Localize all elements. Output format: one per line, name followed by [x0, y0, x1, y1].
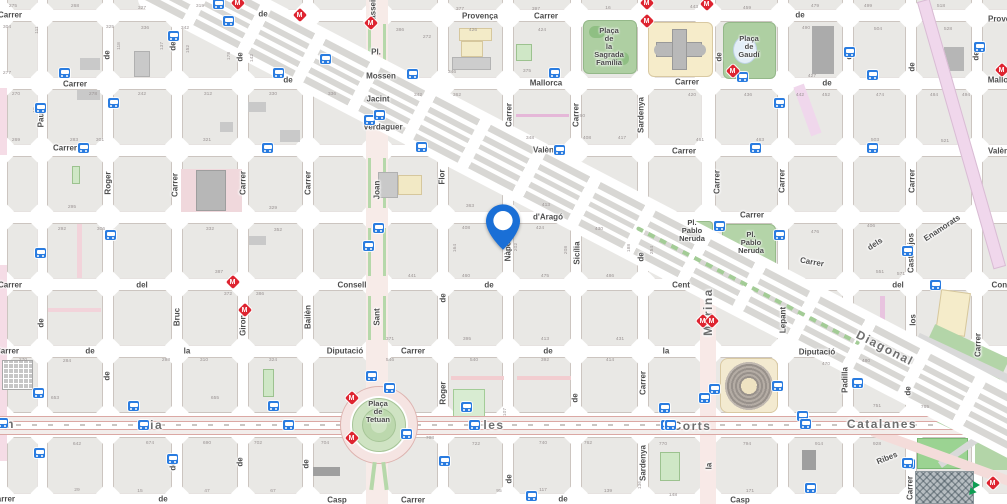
- house-number: 352: [274, 228, 282, 233]
- house-number: 424: [538, 28, 546, 33]
- city-block: [385, 223, 438, 279]
- city-block: [313, 290, 369, 346]
- house-number: 164: [453, 244, 458, 252]
- city-block: [47, 357, 104, 414]
- house-number: 490: [802, 26, 810, 31]
- city-block: [182, 89, 238, 145]
- city-block: [513, 0, 571, 10]
- bus-stop-icon[interactable]: [709, 384, 720, 394]
- house-number: 15: [137, 489, 142, 494]
- building: [248, 102, 266, 112]
- map-pin-icon[interactable]: [486, 204, 520, 255]
- house-number: 306: [97, 227, 105, 232]
- city-block: [313, 0, 369, 10]
- bus-stop-icon[interactable]: [469, 420, 480, 430]
- house-number: 332: [206, 227, 214, 232]
- city-block: [248, 290, 303, 346]
- house-number: 430: [595, 227, 603, 232]
- building-yellow: [398, 175, 422, 195]
- house-number: 452: [822, 93, 830, 98]
- bus-stop-icon[interactable]: [461, 402, 472, 412]
- city-block: [182, 357, 238, 414]
- bus-stop-icon[interactable]: [665, 420, 676, 430]
- street-label: de: [543, 347, 552, 356]
- bus-stop-icon[interactable]: [167, 454, 178, 464]
- house-number: 486: [606, 274, 614, 279]
- house-number: 413: [541, 337, 549, 342]
- street-label: Carrer: [572, 103, 581, 127]
- bus-stop-icon[interactable]: [373, 223, 384, 233]
- house-number: 928: [873, 442, 881, 447]
- city-block: [385, 0, 438, 10]
- bus-stop-icon[interactable]: [800, 419, 811, 429]
- house-number: 722: [472, 442, 480, 447]
- bus-stop-icon[interactable]: [0, 418, 8, 428]
- street-label: Roger: [104, 171, 113, 194]
- street-label: de: [258, 10, 267, 19]
- passage: [48, 308, 101, 312]
- house-number: 762: [584, 441, 592, 446]
- street-label: de: [236, 457, 245, 466]
- place-label: PlaçadeTetuan: [366, 400, 390, 424]
- street-label: Mallorca: [530, 79, 562, 88]
- street-label: Carrer: [534, 12, 558, 21]
- street-label: de: [37, 318, 46, 327]
- street-label: de: [715, 52, 724, 61]
- house-number: 503: [871, 138, 879, 143]
- house-number: 740: [539, 441, 547, 446]
- house-number: 327: [138, 6, 146, 11]
- building: [196, 170, 226, 211]
- bus-stop-icon[interactable]: [35, 103, 46, 113]
- street-label: Carrer: [639, 371, 648, 395]
- city-block: [513, 223, 571, 279]
- house-number: 371: [386, 337, 394, 342]
- house-number: 413: [542, 203, 550, 208]
- bus-stop-icon[interactable]: [867, 70, 878, 80]
- bus-stop-icon[interactable]: [401, 429, 412, 439]
- street-label: de: [637, 252, 646, 261]
- street-label: de: [85, 347, 94, 356]
- house-number: 765: [921, 405, 929, 410]
- building: [802, 450, 816, 470]
- house-number: 521: [941, 139, 949, 144]
- house-number: 137: [160, 42, 165, 50]
- house-number: 474: [876, 93, 884, 98]
- city-block: [788, 156, 843, 212]
- house-number: 310: [200, 358, 208, 363]
- street-label: de: [505, 474, 514, 483]
- street-label: Corts: [673, 419, 712, 433]
- house-number: 704: [321, 441, 329, 446]
- street-label: Cent: [672, 281, 690, 290]
- street-label: los: [909, 314, 918, 326]
- street-label: Flor: [438, 169, 447, 184]
- street-label: Casp: [327, 496, 347, 504]
- street-label: Diputació: [799, 348, 835, 357]
- house-number: 270: [19, 358, 27, 363]
- house-number: 342: [414, 93, 422, 98]
- bus-stop-icon[interactable]: [59, 68, 70, 78]
- house-number: 426: [469, 28, 477, 33]
- house-number: 372: [224, 292, 232, 297]
- house-number: 406: [867, 224, 875, 229]
- street-label: de: [236, 52, 245, 61]
- house-number: 324: [269, 358, 277, 363]
- bus-stop-icon[interactable]: [35, 248, 46, 258]
- bus-stop-icon[interactable]: [867, 143, 878, 153]
- place-label: PlaçadeGaudí: [738, 35, 759, 59]
- house-number: 136: [638, 481, 643, 489]
- house-number: 29: [74, 488, 79, 493]
- bus-stop-icon[interactable]: [659, 403, 670, 413]
- house-number: 269: [12, 138, 20, 143]
- house-number: 95: [496, 489, 501, 494]
- house-number: 417: [618, 136, 626, 141]
- house-number: 392: [541, 358, 549, 363]
- house-number: 441: [408, 274, 416, 279]
- house-number: 117: [539, 488, 547, 493]
- street-label: Marina: [701, 288, 715, 336]
- street-label: Diputació: [327, 347, 363, 356]
- house-number: 16: [605, 6, 610, 11]
- house-number: 443: [690, 5, 698, 10]
- house-number: 408: [462, 226, 470, 231]
- place-label: Pl.PabloNeruda: [738, 231, 764, 255]
- bus-stop-icon[interactable]: [439, 456, 450, 466]
- city-block: [581, 357, 638, 414]
- house-number: 188: [627, 244, 632, 252]
- street-label: de: [972, 51, 981, 60]
- house-number: 321: [203, 138, 211, 143]
- bus-stop-icon[interactable]: [128, 401, 139, 411]
- house-number: 204: [756, 386, 761, 394]
- bus-stop-icon[interactable]: [737, 72, 748, 82]
- bus-stop-icon[interactable]: [374, 110, 385, 120]
- median-green: [368, 228, 371, 276]
- house-number: 111: [35, 26, 40, 33]
- sagrada-familia-building: [694, 44, 706, 56]
- house-number: 751: [873, 404, 881, 409]
- house-number: 325: [106, 25, 114, 30]
- house-number: 690: [203, 441, 211, 446]
- house-number: 546: [386, 358, 394, 363]
- city-block: [982, 89, 1007, 145]
- city-block: [7, 156, 38, 212]
- street-label: Mossen: [366, 72, 396, 81]
- street-label: Carrer: [401, 496, 425, 504]
- street-label: de: [283, 76, 292, 85]
- street-label: Sant: [373, 308, 382, 325]
- house-number: 342: [181, 26, 189, 31]
- house-number: 362: [453, 93, 461, 98]
- bus-stop-icon[interactable]: [273, 68, 284, 78]
- bus-stop-icon[interactable]: [34, 448, 45, 458]
- bus-stop-icon[interactable]: [844, 47, 855, 57]
- bus-stop-icon[interactable]: [366, 371, 377, 381]
- sagrada-familia-building: [654, 44, 666, 56]
- street-label: Provença: [462, 12, 498, 21]
- bus-stop-icon[interactable]: [363, 241, 374, 251]
- city-block: [182, 290, 238, 346]
- street-label: Carrer: [304, 171, 313, 195]
- house-number: 272: [423, 35, 431, 40]
- street-label: la: [184, 347, 191, 356]
- house-number: 479: [811, 4, 819, 9]
- street-label: Pl.: [371, 48, 381, 57]
- house-number: 653: [51, 396, 59, 401]
- bus-stop-icon[interactable]: [407, 69, 418, 79]
- street-label: Consell: [992, 281, 1007, 290]
- city-block: [7, 21, 38, 78]
- street-label: de: [158, 495, 167, 504]
- passage: [77, 224, 82, 278]
- street-label: Jacint: [366, 95, 389, 104]
- median-green: [368, 296, 371, 340]
- street-label: de: [103, 50, 112, 59]
- house-number: 540: [470, 358, 478, 363]
- bus-stop-icon[interactable]: [805, 483, 816, 493]
- bus-stop-icon[interactable]: [268, 401, 279, 411]
- bus-stop-icon[interactable]: [223, 16, 234, 26]
- house-number: 499: [864, 4, 872, 9]
- street-label: Carrer: [0, 281, 22, 290]
- bus-stop-icon[interactable]: [554, 145, 565, 155]
- bus-stop-icon[interactable]: [33, 388, 44, 398]
- house-number: 674: [146, 441, 154, 446]
- house-number: 254: [650, 246, 655, 254]
- bus-stop-icon[interactable]: [974, 42, 985, 52]
- bus-stop-icon[interactable]: [549, 68, 560, 78]
- street-label: Carrer: [672, 147, 696, 156]
- bus-stop-icon[interactable]: [902, 458, 913, 468]
- map-canvas[interactable]: CarrerdeProvençaCarrerdeProvençaCarrerde…: [0, 0, 1007, 504]
- house-number: 414: [606, 358, 614, 363]
- city-block: [7, 223, 38, 279]
- street-label: Joan: [373, 181, 382, 200]
- city-block: [581, 290, 638, 346]
- street-pink-edge: [0, 88, 7, 155]
- street-label: Sardenya: [639, 445, 648, 481]
- bus-stop-icon[interactable]: [168, 31, 179, 41]
- street-label: de: [571, 393, 580, 402]
- house-number: 770: [659, 442, 667, 447]
- els-encants-building: [915, 471, 974, 504]
- city-block: [113, 156, 172, 212]
- street-label: Carrer: [0, 495, 15, 504]
- house-number: 348: [526, 136, 534, 141]
- city-block: [113, 223, 172, 279]
- house-number: 329: [269, 206, 277, 211]
- house-number: 702: [254, 441, 262, 446]
- house-number: 386: [396, 28, 404, 33]
- house-number: 708: [426, 436, 434, 441]
- bus-stop-icon[interactable]: [852, 378, 863, 388]
- bus-stop-icon[interactable]: [714, 221, 725, 231]
- city-block: [113, 290, 172, 346]
- street-label: de: [439, 293, 448, 302]
- house-number: 420: [688, 93, 696, 98]
- sagrada-familia-building: [672, 29, 687, 70]
- house-number: 298: [162, 358, 170, 363]
- house-number: 463: [756, 138, 764, 143]
- bus-stop-icon[interactable]: [774, 230, 785, 240]
- passage: [516, 114, 569, 117]
- city-block: [513, 357, 571, 414]
- bus-stop-icon[interactable]: [213, 0, 224, 9]
- city-block: [982, 0, 1007, 10]
- bus-stop-icon[interactable]: [699, 393, 710, 403]
- house-number: 476: [811, 230, 819, 235]
- city-block: [853, 0, 906, 10]
- city-block: [7, 290, 38, 346]
- building: [220, 122, 233, 132]
- house-number: 283: [70, 138, 78, 143]
- city-block: [853, 156, 906, 212]
- street-label: Bruc: [173, 308, 182, 326]
- building-green: [263, 369, 274, 397]
- street-label: Carrer: [974, 333, 983, 357]
- city-block: [448, 290, 503, 346]
- street-label: Carrer: [740, 211, 764, 220]
- house-number: 346: [448, 70, 456, 75]
- street-label: Lepant: [779, 307, 788, 333]
- house-number: 319: [196, 4, 204, 9]
- house-number: 387: [215, 270, 223, 275]
- building: [249, 236, 266, 245]
- house-number: 275: [9, 4, 17, 9]
- house-number: 424: [536, 226, 544, 231]
- house-number: 336: [141, 26, 149, 31]
- street-label: Carrer: [53, 144, 77, 153]
- street-label: Carrer: [0, 347, 19, 356]
- place-label: PlaçadelaSagradaFamília: [594, 27, 624, 67]
- house-number: 571: [897, 272, 905, 277]
- street-label: del: [136, 281, 148, 290]
- median-green: [368, 158, 371, 208]
- street-label: de: [558, 495, 567, 504]
- bus-stop-icon[interactable]: [320, 54, 331, 64]
- city-block: [648, 290, 702, 346]
- street-label: de: [484, 281, 493, 290]
- house-number: 518: [937, 4, 945, 9]
- street-label: Casp: [730, 496, 750, 504]
- house-number: 436: [744, 93, 752, 98]
- street-label: Carrer: [713, 170, 722, 194]
- building-green: [72, 166, 80, 184]
- bus-stop-icon[interactable]: [416, 142, 427, 152]
- building: [2, 360, 33, 390]
- city-block: [182, 437, 238, 494]
- house-number: 470: [822, 362, 830, 367]
- bus-stop-icon[interactable]: [138, 420, 149, 430]
- city-block: [248, 437, 303, 494]
- bus-stop-icon[interactable]: [750, 143, 761, 153]
- house-number: 460: [462, 274, 470, 279]
- city-block: [7, 437, 38, 494]
- building-green: [660, 452, 680, 481]
- city-block: [581, 437, 638, 494]
- house-number: 270: [12, 92, 20, 97]
- house-number: 746: [743, 405, 751, 410]
- pin-glyph: [486, 204, 520, 250]
- house-number: 427: [808, 74, 816, 79]
- street-label: Carrer: [0, 11, 22, 20]
- building: [280, 130, 300, 142]
- house-number: 277: [3, 71, 11, 76]
- bus-stop-icon[interactable]: [774, 98, 785, 108]
- street-label: d'Aragó: [533, 213, 563, 222]
- metro-icon[interactable]: M: [700, 0, 714, 11]
- metro-icon[interactable]: M: [640, 0, 654, 10]
- street-label: Mallorca: [988, 76, 1007, 85]
- house-number: 442: [796, 93, 804, 98]
- recycling-icon[interactable]: [967, 479, 981, 493]
- house-number: 67: [270, 489, 275, 494]
- city-block: [248, 156, 303, 212]
- house-number: 386: [256, 292, 264, 297]
- house-number: 278: [89, 92, 97, 97]
- bus-stop-icon[interactable]: [384, 383, 395, 393]
- house-number: 304: [3, 25, 11, 30]
- street-label: la: [705, 463, 714, 470]
- street-label: Carrer: [63, 80, 87, 89]
- house-number: 655: [211, 396, 219, 401]
- house-number: 459: [743, 6, 751, 11]
- house-number: 794: [743, 442, 751, 447]
- house-number: 242: [138, 92, 146, 97]
- street-label: Carrer: [906, 476, 915, 500]
- median-green: [383, 296, 386, 340]
- bus-stop-icon[interactable]: [78, 143, 89, 153]
- building: [80, 58, 100, 70]
- street-label: Carrer: [778, 169, 787, 193]
- bus-stop-icon[interactable]: [283, 420, 294, 430]
- city-block: [47, 290, 104, 346]
- house-number: 914: [815, 442, 823, 447]
- bus-stop-icon[interactable]: [262, 143, 273, 153]
- street-label: de: [904, 386, 913, 395]
- street-label: de: [103, 371, 112, 380]
- street-label: Padilla: [841, 367, 850, 393]
- city-block: [113, 357, 172, 414]
- bus-stop-icon[interactable]: [902, 246, 913, 256]
- house-number: 363: [466, 204, 474, 209]
- city-block: [982, 290, 1007, 346]
- house-number: 551: [876, 270, 884, 275]
- median-green: [383, 228, 386, 276]
- house-number: 208: [564, 246, 569, 254]
- street-label: Provença: [988, 15, 1007, 24]
- house-number: 292: [58, 227, 66, 232]
- building-yellow: [461, 41, 483, 57]
- street-label: del: [892, 281, 904, 290]
- bus-stop-icon[interactable]: [108, 98, 119, 108]
- bus-stop-icon[interactable]: [526, 491, 537, 501]
- building: [452, 57, 491, 70]
- city-block: [113, 89, 172, 145]
- street-label: de: [302, 459, 311, 468]
- building: [134, 51, 150, 77]
- passage: [451, 376, 504, 380]
- bus-stop-icon[interactable]: [772, 381, 783, 391]
- city-block: [715, 156, 779, 212]
- street-label: Bailèn: [304, 305, 313, 329]
- bus-stop-icon[interactable]: [105, 230, 116, 240]
- city-block: [313, 223, 369, 279]
- bus-stop-icon[interactable]: [930, 280, 941, 290]
- city-block: [648, 357, 702, 414]
